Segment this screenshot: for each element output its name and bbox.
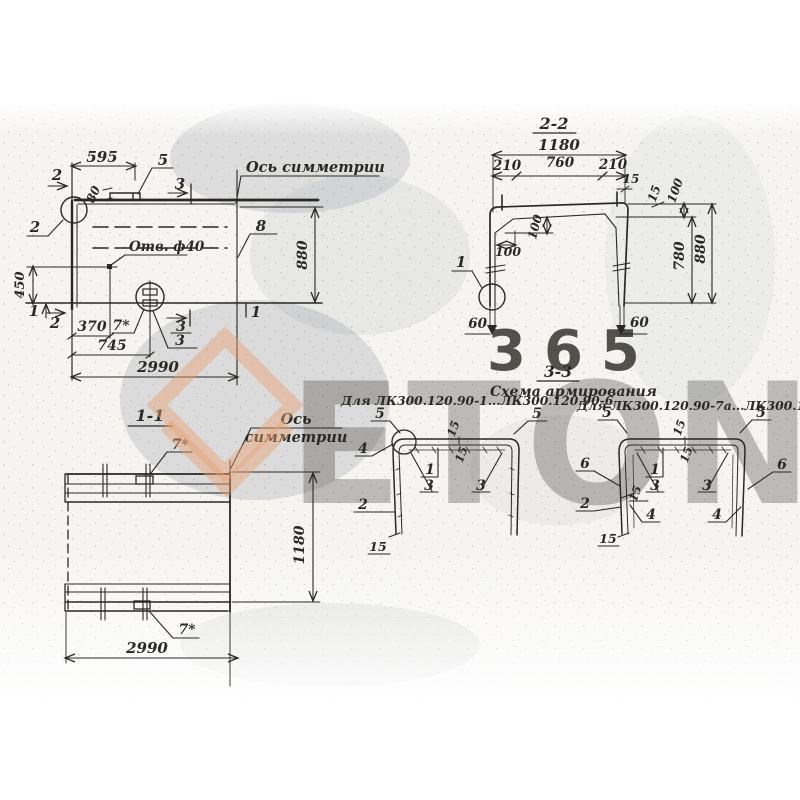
mark-8: 8 <box>256 217 267 235</box>
watermark-number: 365 <box>487 319 658 384</box>
dim-100-horiz: 100 <box>495 244 521 259</box>
s22-mark-1: 1 <box>456 253 466 271</box>
blueprint-svg: 595 5 80 3 Ось симметрии 8 880 2 2 450 О… <box>0 0 800 800</box>
dim-1180: 1180 <box>538 136 580 154</box>
mark-3-hole: 3 <box>175 333 185 349</box>
s22-title: 2-2 <box>539 114 569 133</box>
dim-210-right: 210 <box>598 157 628 173</box>
mark-1-left: 1 <box>29 302 39 320</box>
dim-15-right: 15 <box>623 172 640 186</box>
mark-1-right: 1 <box>251 303 261 321</box>
dim-450: 450 <box>13 271 28 298</box>
mark-7: 7* <box>112 318 130 334</box>
dim-760: 760 <box>546 155 575 171</box>
s11-mark-7-bottom: 7* <box>178 622 196 638</box>
detail-2-label: 2 <box>29 218 40 236</box>
dim-370: 370 <box>77 319 106 335</box>
axis-label: Ось симметрии <box>246 159 385 176</box>
dim-880-plan: 880 <box>295 240 311 269</box>
hole-label: Отв. ф40 <box>129 239 205 255</box>
mark-5: 5 <box>158 151 168 169</box>
drawing-sheet: 595 5 80 3 Ось симметрии 8 880 2 2 450 О… <box>0 0 800 800</box>
mark-3-top: 3 <box>175 175 185 193</box>
dim-880-s22: 880 <box>693 234 709 263</box>
dim-2990-plan: 2990 <box>136 358 179 376</box>
dim-210-left: 210 <box>492 158 522 174</box>
dim-745: 745 <box>97 338 126 354</box>
dim-780: 780 <box>672 241 688 270</box>
mark-2-top: 2 <box>51 166 62 184</box>
dim-60-left: 60 <box>468 316 487 332</box>
dim-595: 595 <box>86 148 117 166</box>
dim-2990-s11: 2990 <box>125 639 168 657</box>
mark-2-bottom: 2 <box>49 314 60 332</box>
